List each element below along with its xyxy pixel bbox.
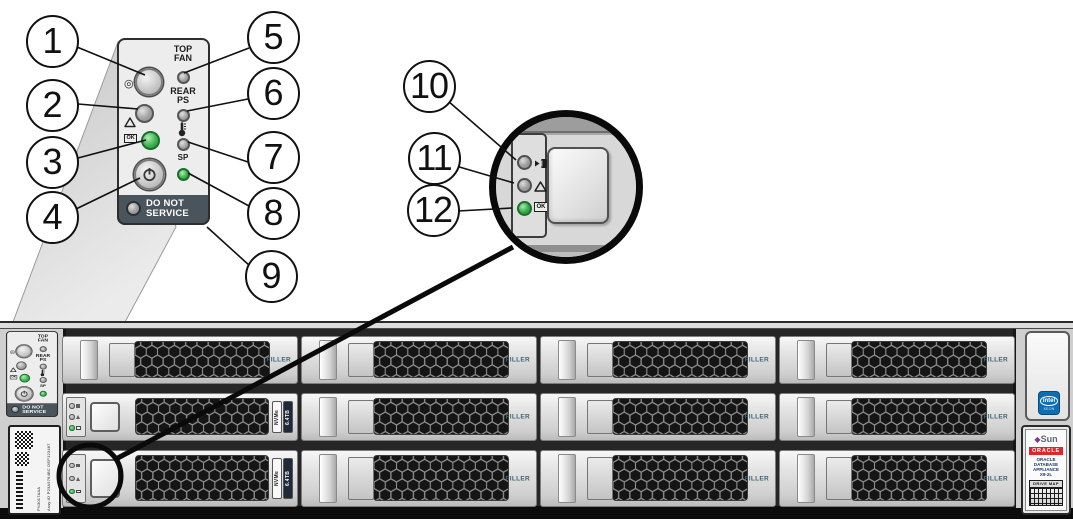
ok-led xyxy=(69,489,75,495)
oracle-logo-bar: ORACLE xyxy=(1029,447,1063,455)
rear-ps-label: REAR PS xyxy=(32,354,54,362)
intel-logo: intel xyxy=(1040,396,1058,406)
do-not-service-bar: DO NOT SERVICE xyxy=(6,403,58,417)
qr-code xyxy=(15,452,29,466)
callout-4: 4 xyxy=(26,191,79,244)
ok-icon xyxy=(76,490,81,494)
vent-mesh xyxy=(135,455,269,501)
front-panel-on-chassis: TOP FAN REAR PS SP ◎ O xyxy=(6,331,58,417)
do-not-service-label: DO NOT SERVICE xyxy=(22,405,46,414)
nvme-label: NVMe xyxy=(272,401,282,433)
callout-7: 7 xyxy=(247,131,300,184)
drive-bay-3-filler: FILLER xyxy=(779,336,1015,384)
capacity-label: 6.4TB xyxy=(283,401,293,433)
top-fan-label: TOP FAN xyxy=(163,45,203,62)
filler-label: FILLER xyxy=(744,475,769,482)
callout-1: 1 xyxy=(26,15,79,68)
nvme-label: NVMe xyxy=(272,458,282,499)
callout-5: 5 xyxy=(247,11,300,64)
sun-logo: ◆Sun xyxy=(1026,434,1066,445)
do-not-service-led xyxy=(11,406,19,413)
drive-bay-6-filler: FILLER xyxy=(540,393,776,441)
drive-led-strip-detail: OK xyxy=(511,133,547,238)
assembly-id-text: Assy-ID P23A5764BC DEP123487 xyxy=(46,433,51,511)
top-fan-led xyxy=(39,346,46,352)
do-not-service-label: DO NOT SERVICE xyxy=(146,199,189,218)
product-name: ORACLE DATABASE APPLIANCE X9-2L xyxy=(1026,457,1066,477)
callout-8: 8 xyxy=(247,187,300,240)
filler-label: FILLER xyxy=(983,475,1008,482)
server-front-chassis: FILLER FILLER FILLER FILLER xyxy=(0,321,1073,519)
over-temperature-led xyxy=(39,377,46,383)
filler-lever xyxy=(80,340,98,380)
drive-bay-5-filler: FILLER xyxy=(301,393,537,441)
drive-release-button xyxy=(90,459,120,498)
ok-icon: OK xyxy=(534,202,548,212)
front-panel-detail: TOP FAN REAR PS SP ◎ O xyxy=(6,331,58,417)
filler-latch-tab xyxy=(348,457,374,500)
fault-icon xyxy=(76,415,80,419)
drive-led-strip xyxy=(66,397,86,437)
callout-3: 3 xyxy=(26,136,79,189)
fault-led xyxy=(16,361,27,370)
drive-bottom xyxy=(496,252,636,257)
drive-bay-2-filler: FILLER xyxy=(540,336,776,384)
callout-9: 9 xyxy=(245,250,298,303)
power-icon xyxy=(20,390,28,397)
callout-2: 2 xyxy=(26,79,79,132)
ready-to-remove-icon xyxy=(534,156,548,174)
filler-label: FILLER xyxy=(744,357,769,364)
drive-release-button-detail xyxy=(547,147,609,224)
filler-label: FILLER xyxy=(266,357,291,364)
do-not-service-led xyxy=(126,201,141,216)
over-temperature-led xyxy=(177,138,190,151)
drive-bay-9-filler: FILLER xyxy=(301,450,537,507)
drive-release-button xyxy=(90,402,120,432)
filler-latch-tab xyxy=(348,400,374,434)
rear-ps-label: REAR PS xyxy=(163,87,203,104)
front-panel-detail: TOP FAN REAR PS SP ◎ O xyxy=(117,38,210,225)
vent-mesh xyxy=(134,341,270,378)
part-number-text: PN3017AAA xyxy=(36,433,41,511)
filler-latch-tab xyxy=(587,457,613,500)
fault-led xyxy=(69,414,75,420)
ready-to-remove-led xyxy=(69,463,75,469)
filler-lever xyxy=(797,340,815,380)
top-fan-label: TOP FAN xyxy=(32,334,54,342)
filler-latch-tab xyxy=(826,343,852,377)
power-button xyxy=(134,159,165,190)
drive-bay-4-nvme: NVMe 6.4TB xyxy=(62,393,298,441)
ok-led xyxy=(141,131,160,150)
callout-12: 12 xyxy=(407,184,460,237)
filler-label: FILLER xyxy=(744,414,769,421)
serial-label: PN3017AAA Assy-ID P23A5764BC DEP123487 xyxy=(8,425,61,515)
vent-mesh xyxy=(373,341,509,378)
do-not-service-bar: DO NOT SERVICE xyxy=(117,195,210,225)
chassis-bottom-band xyxy=(0,506,1073,519)
filler-label: FILLER xyxy=(983,357,1008,364)
drive-bay-0-filler: FILLER xyxy=(62,336,298,384)
drive-map: DRIVE MAP xyxy=(1029,480,1063,506)
filler-label: FILLER xyxy=(505,475,530,482)
figure-front-panel-callouts: FILLER FILLER FILLER FILLER xyxy=(0,0,1073,526)
ok-icon: OK xyxy=(124,134,137,143)
ready-to-remove-led xyxy=(69,403,75,409)
vent-mesh xyxy=(373,398,509,435)
filler-latch-tab xyxy=(109,343,135,377)
sp-label: SP xyxy=(173,154,193,163)
drive-bay-8-nvme: NVMe 6.4TB xyxy=(62,450,298,507)
callout-6: 6 xyxy=(247,67,300,120)
drive-led-strip xyxy=(66,454,86,503)
vent-mesh xyxy=(851,455,987,501)
fault-led xyxy=(69,476,75,482)
locator-button xyxy=(135,68,163,96)
locator-button xyxy=(16,345,32,358)
filler-label: FILLER xyxy=(505,414,530,421)
filler-lever xyxy=(558,340,576,380)
fault-icon xyxy=(124,115,136,133)
rear-ps-led xyxy=(177,109,190,122)
locator-icon: ◎ xyxy=(10,350,15,355)
qr-code xyxy=(15,431,33,449)
filler-lever xyxy=(797,397,815,437)
power-icon xyxy=(142,167,157,182)
ready-to-remove-icon xyxy=(76,404,80,408)
top-fan-led xyxy=(177,71,190,84)
sp-ok-led xyxy=(177,168,190,181)
filler-latch-tab xyxy=(348,343,374,377)
vent-mesh xyxy=(612,341,748,378)
fault-icon xyxy=(534,179,547,197)
ok-activity-led xyxy=(517,201,532,216)
vent-mesh xyxy=(851,398,987,435)
filler-label: FILLER xyxy=(983,414,1008,421)
capacity-label: 6.4TB xyxy=(283,458,293,499)
callout-11: 11 xyxy=(408,132,461,185)
filler-lever xyxy=(558,454,576,503)
ok-led xyxy=(19,374,30,383)
ok-icon xyxy=(76,426,81,430)
drive-indicator-detail: OK xyxy=(489,110,643,264)
vent-mesh xyxy=(135,398,269,435)
bezel-band xyxy=(496,117,636,133)
product-label-inner: ◆Sun ORACLE ORACLE DATABASE APPLIANCE X9… xyxy=(1025,429,1067,511)
vent-mesh xyxy=(612,398,748,435)
filler-latch-tab xyxy=(826,457,852,500)
sp-label: SP xyxy=(37,384,48,388)
fault-led xyxy=(517,178,532,193)
xeon-text: XEON xyxy=(1043,407,1054,411)
product-label: ◆Sun ORACLE ORACLE DATABASE APPLIANCE X9… xyxy=(1021,425,1071,515)
drive-bay-10-filler: FILLER xyxy=(540,450,776,507)
drive-bay-7-filler: FILLER xyxy=(779,393,1015,441)
fault-led xyxy=(135,104,154,123)
filler-lever xyxy=(558,397,576,437)
drive-bay-11-filler: FILLER xyxy=(779,450,1015,507)
vent-mesh xyxy=(373,455,509,501)
filler-latch-tab xyxy=(587,400,613,434)
locator-icon: ◎ xyxy=(124,79,134,90)
fault-icon xyxy=(76,477,80,481)
ok-led xyxy=(69,425,75,431)
drive-shadow xyxy=(496,245,636,252)
vent-mesh xyxy=(851,341,987,378)
filler-lever xyxy=(319,397,337,437)
filler-latch-tab xyxy=(826,400,852,434)
right-ear-panel: intel XEON xyxy=(1025,331,1070,421)
ok-icon: OK xyxy=(10,375,17,379)
vent-mesh xyxy=(612,455,748,501)
sp-ok-led xyxy=(39,391,46,397)
filler-latch-tab xyxy=(587,343,613,377)
filler-lever xyxy=(319,454,337,503)
callout-10: 10 xyxy=(403,60,456,113)
intel-xeon-badge: intel XEON xyxy=(1038,391,1060,415)
ready-to-remove-led xyxy=(517,155,532,170)
power-button xyxy=(15,386,32,400)
filler-lever xyxy=(319,340,337,380)
filler-lever xyxy=(797,454,815,503)
drive-bay-1-filler: FILLER xyxy=(301,336,537,384)
drive-map-grid xyxy=(1030,488,1062,505)
barcode xyxy=(16,471,23,509)
ready-to-remove-icon xyxy=(76,464,80,468)
filler-label: FILLER xyxy=(505,357,530,364)
drive-map-title: DRIVE MAP xyxy=(1030,481,1062,488)
